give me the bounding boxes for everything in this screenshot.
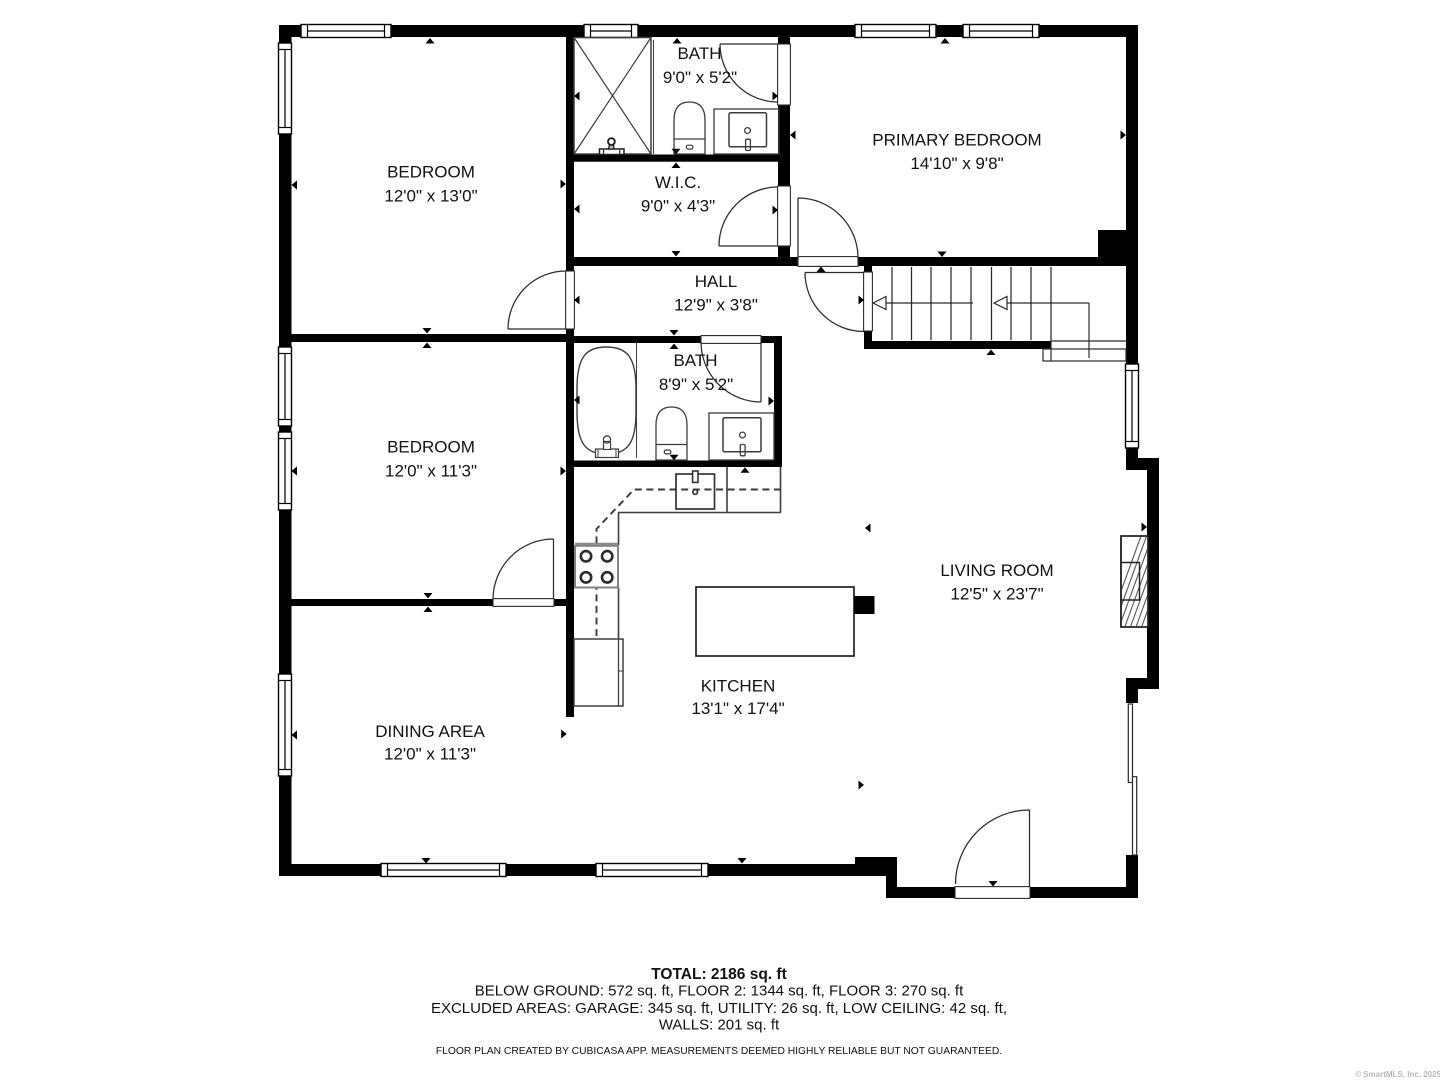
svg-text:BATH: BATH	[677, 44, 721, 63]
svg-text:9'0" x 4'3": 9'0" x 4'3"	[641, 197, 715, 216]
svg-text:HALL: HALL	[695, 272, 738, 291]
svg-text:LIVING ROOM: LIVING ROOM	[940, 561, 1053, 580]
svg-text:W.I.C.: W.I.C.	[655, 173, 701, 192]
svg-text:BEDROOM: BEDROOM	[387, 163, 475, 182]
svg-text:12'0" x 11'3": 12'0" x 11'3"	[384, 745, 476, 764]
svg-text:PRIMARY BEDROOM: PRIMARY BEDROOM	[872, 131, 1041, 150]
svg-text:BATH: BATH	[673, 351, 717, 370]
svg-text:BEDROOM: BEDROOM	[387, 438, 475, 457]
svg-text:12'9" x 3'8": 12'9" x 3'8"	[674, 296, 758, 315]
svg-text:TOTAL: 2186 sq. ft: TOTAL: 2186 sq. ft	[651, 966, 787, 983]
svg-text:BELOW GROUND: 572 sq. ft, FLOO: BELOW GROUND: 572 sq. ft, FLOOR 2: 1344 …	[475, 983, 964, 1000]
svg-text:14'10" x 9'8": 14'10" x 9'8"	[910, 154, 1003, 173]
svg-text:WALLS: 201 sq. ft: WALLS: 201 sq. ft	[659, 1017, 780, 1034]
svg-text:KITCHEN: KITCHEN	[701, 677, 776, 696]
svg-text:EXCLUDED AREAS: GARAGE: 345 sq: EXCLUDED AREAS: GARAGE: 345 sq. ft, UTIL…	[431, 1000, 1007, 1017]
svg-text:© SmartMLS, Inc. 2025: © SmartMLS, Inc. 2025	[1355, 1070, 1440, 1079]
svg-text:8'9" x 5'2": 8'9" x 5'2"	[659, 375, 733, 394]
svg-text:FLOOR PLAN CREATED BY CUBICASA: FLOOR PLAN CREATED BY CUBICASA APP. MEAS…	[436, 1046, 1002, 1057]
svg-text:DINING AREA: DINING AREA	[375, 722, 485, 741]
svg-text:13'1" x 17'4": 13'1" x 17'4"	[691, 699, 784, 718]
svg-text:12'0" x 11'3": 12'0" x 11'3"	[385, 462, 477, 481]
svg-text:12'5" x 23'7": 12'5" x 23'7"	[950, 585, 1043, 604]
svg-text:12'0" x 13'0": 12'0" x 13'0"	[384, 187, 477, 206]
svg-text:9'0" x 5'2": 9'0" x 5'2"	[663, 68, 737, 87]
